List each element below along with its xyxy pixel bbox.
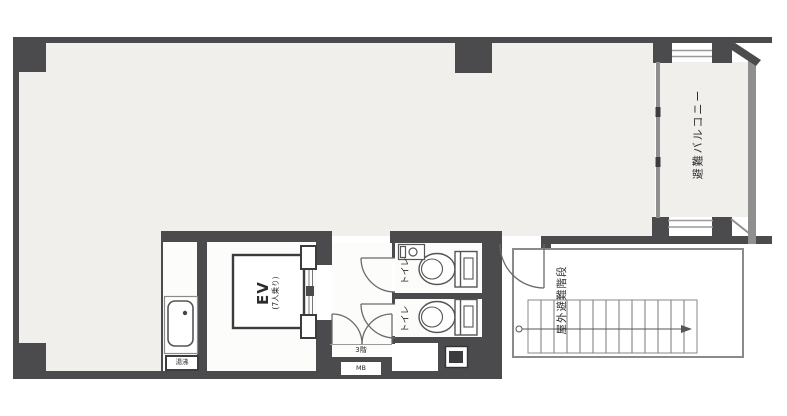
elevator-label: EV (7人乗り)	[255, 276, 281, 309]
pipe-shaft-icon	[446, 347, 468, 368]
stair-door-arc	[500, 244, 544, 288]
stairs-label: 屋外避難階段	[556, 266, 568, 335]
toilet-upper-door-arc	[361, 258, 395, 292]
toilet-upper-label: トイレ	[401, 257, 411, 284]
chamfer-corner	[721, 37, 761, 66]
corridor-right-door-arc	[362, 314, 392, 344]
stair-treads-icon	[528, 300, 697, 353]
balcony-corner-diagonal	[731, 219, 755, 238]
floor-plan: 3階 MB 湯沸	[0, 0, 787, 416]
toilet-lower-door-arc	[361, 304, 395, 338]
plan-linework	[0, 0, 787, 416]
toilet-lower-icon	[419, 300, 477, 336]
elevator-label-line2: (7人乗り)	[272, 276, 281, 309]
sink-icon	[165, 297, 198, 354]
elevator-label-line1: EV	[255, 276, 272, 309]
balcony-label: 避難バルコニー	[693, 89, 706, 180]
stair-direction-arrow	[516, 325, 692, 333]
toilet-lower-label: トイレ	[401, 305, 411, 332]
toilet-upper-icon	[419, 252, 477, 288]
corridor-left-door-arc	[332, 314, 362, 344]
balcony-door-ticks	[656, 107, 661, 167]
balcony-railings	[668, 51, 713, 228]
